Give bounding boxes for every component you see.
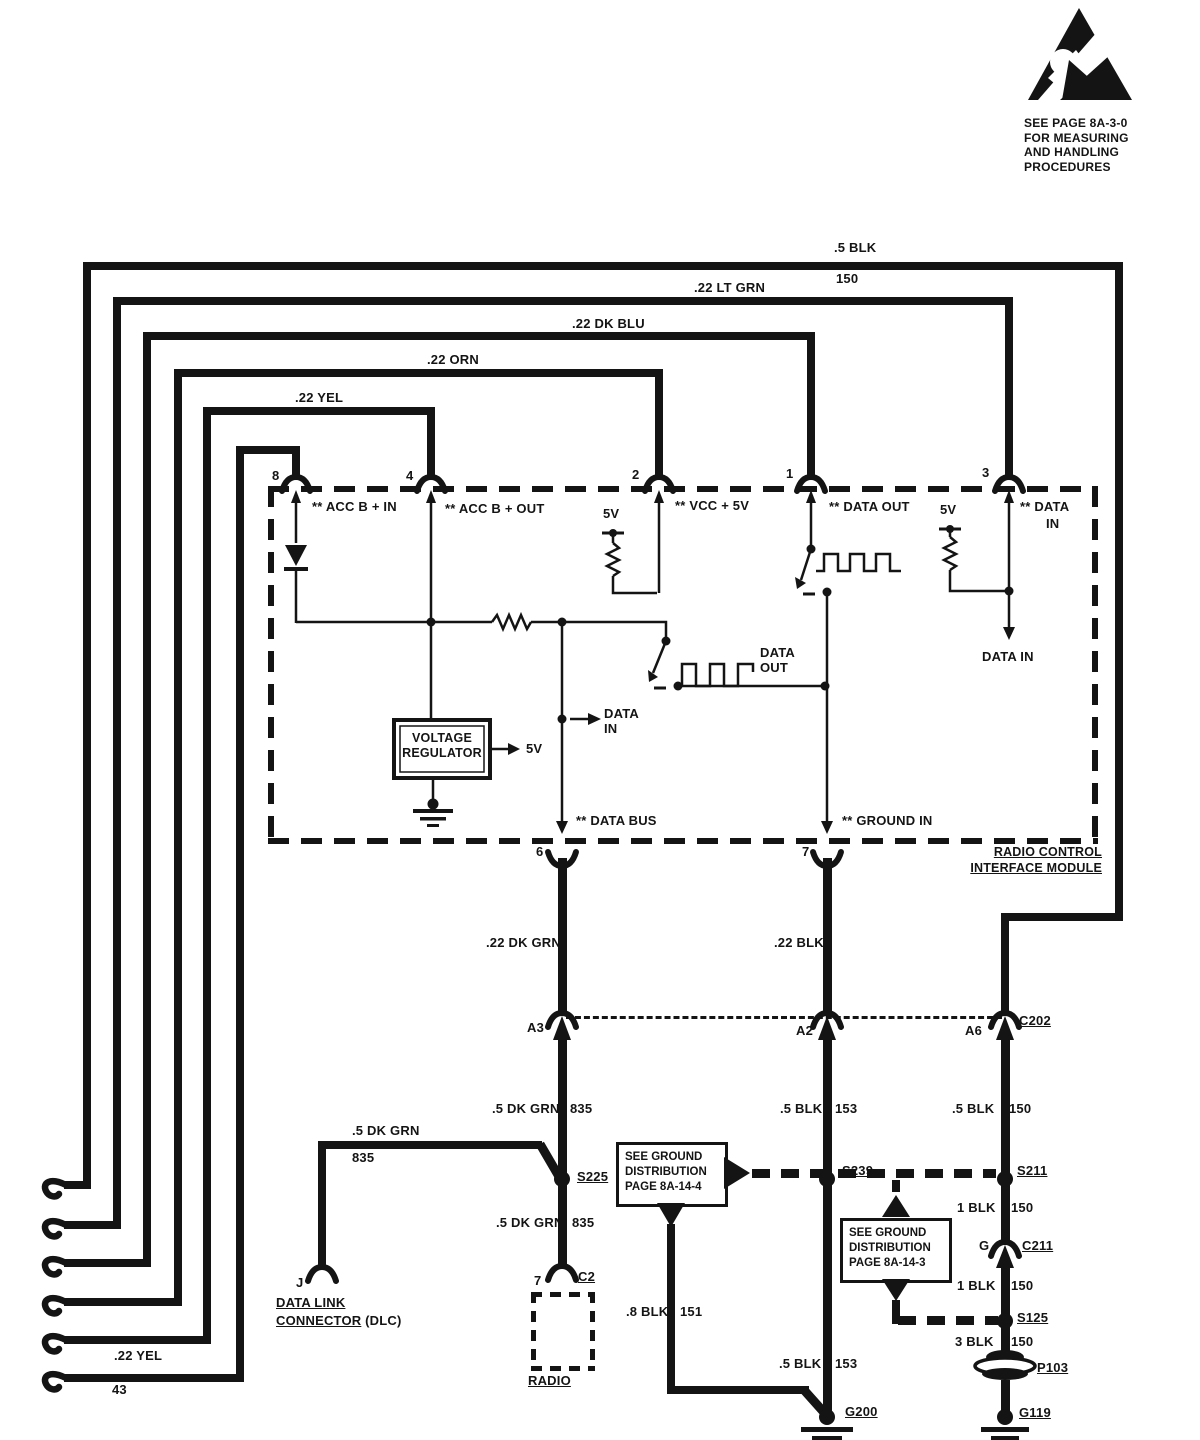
wire-label-orn: .22 ORN — [427, 353, 479, 367]
c202-label: C202 — [1019, 1014, 1051, 1028]
dlc-name-line2: CONNECTOR (DLC) — [276, 1314, 402, 1328]
seg-blk-label: .22 BLK — [774, 936, 824, 950]
wire-label-blk: .5 BLK — [834, 241, 876, 255]
data-out-mid-line2: OUT — [760, 661, 788, 675]
c2-wire-color: .5 DK GRN — [496, 1216, 564, 1230]
seg-dkgrn-label: .22 DK GRN — [486, 936, 561, 950]
text-layer: SEE PAGE 8A-3-0 FOR MEASURING AND HANDLI… — [0, 0, 1200, 1440]
g200-lower-circuit: 153 — [835, 1357, 857, 1371]
data-in-mid-line2: IN — [604, 722, 617, 736]
dlc-name-connector: CONNECTOR — [276, 1313, 361, 1328]
p103-label: P103 — [1037, 1361, 1068, 1375]
dlc-name-suffix: (DLC) — [361, 1313, 401, 1328]
a6-wire-circuit: 150 — [1009, 1102, 1031, 1116]
pin4-label: ** ACC B + OUT — [445, 502, 544, 516]
pin2-label: ** VCC + 5V — [675, 499, 749, 513]
g200-upper-circuit: 151 — [680, 1305, 702, 1319]
a3-label: A3 — [527, 1021, 544, 1035]
vr-line2: REGULATOR — [396, 746, 488, 761]
wire-circuit-43: 43 — [112, 1383, 127, 1397]
pin4-number: 4 — [406, 469, 413, 483]
r1-circuit: 150 — [1011, 1201, 1033, 1215]
data-in-mid-line1: DATA — [604, 707, 639, 721]
module-name: RADIO CONTROL INTERFACE MODULE — [930, 845, 1102, 876]
r3-color: 3 BLK — [955, 1335, 994, 1349]
r2-color: 1 BLK — [957, 1279, 996, 1293]
a3-wire-circuit: 835 — [570, 1102, 592, 1116]
pin8-number: 8 — [272, 469, 279, 483]
r3-circuit: 150 — [1011, 1335, 1033, 1349]
esd-note: SEE PAGE 8A-3-0 FOR MEASURING AND HANDLI… — [1024, 116, 1129, 174]
esd-note-line3: AND HANDLING — [1024, 145, 1129, 160]
wire-label-yel43: .22 YEL — [114, 1349, 162, 1363]
a6-wire-color: .5 BLK — [952, 1102, 994, 1116]
pullup-vcc-5v-label: 5V — [603, 507, 619, 521]
esd-note-line4: PROCEDURES — [1024, 160, 1129, 175]
wire-label-ltgrn: .22 LT GRN — [694, 281, 765, 295]
c211-label: C211 — [1022, 1239, 1053, 1253]
dlc-wire-circuit: 835 — [352, 1151, 374, 1165]
r2-circuit: 150 — [1011, 1279, 1033, 1293]
wiring-diagram-page: SEE GROUND DISTRIBUTION PAGE 8A-14-4 SEE… — [0, 0, 1200, 1440]
pin7-number: 7 — [802, 845, 809, 859]
data-out-mid-line1: DATA — [760, 646, 795, 660]
a2-wire-color: .5 BLK — [780, 1102, 822, 1116]
dlc-name-line1: DATA LINK — [276, 1296, 345, 1310]
a2-wire-circuit: 153 — [835, 1102, 857, 1116]
esd-note-line1: SEE PAGE 8A-3-0 — [1024, 116, 1129, 131]
pin1-number: 1 — [786, 467, 793, 481]
radio-label: RADIO — [528, 1374, 571, 1388]
g200-upper-color: .8 BLK — [626, 1305, 668, 1319]
wire-label-dkblu: .22 DK BLU — [572, 317, 645, 331]
pin3-number: 3 — [982, 466, 989, 480]
pin3-label-line1: ** DATA — [1020, 500, 1069, 514]
module-name-line2: INTERFACE MODULE — [930, 861, 1102, 877]
voltage-regulator-label: VOLTAGE REGULATOR — [396, 731, 488, 761]
pin6-number: 6 — [536, 845, 543, 859]
pin6-label: ** DATA BUS — [576, 814, 657, 828]
vr-line1: VOLTAGE — [396, 731, 488, 746]
g119-label: G119 — [1019, 1406, 1051, 1420]
pullup-data-5v-label: 5V — [940, 503, 956, 517]
module-name-line1: RADIO CONTROL — [930, 845, 1102, 861]
data-in-pin3-label: DATA IN — [982, 650, 1034, 664]
pin2-number: 2 — [632, 468, 639, 482]
pin7-label: ** GROUND IN — [842, 814, 933, 828]
wire-circuit-150: 150 — [836, 272, 858, 286]
g200-lower-color: .5 BLK — [779, 1357, 821, 1371]
r1-color: 1 BLK — [957, 1201, 996, 1215]
s125-label: S125 — [1017, 1311, 1048, 1325]
a3-wire-color: .5 DK GRN — [492, 1102, 560, 1116]
a6-label: A6 — [965, 1024, 982, 1038]
wire-label-yel: .22 YEL — [295, 391, 343, 405]
c211-pin-label: G — [979, 1239, 989, 1253]
c2-wire-circuit: 835 — [572, 1216, 594, 1230]
s225-label: S225 — [577, 1170, 608, 1184]
g200-label: G200 — [845, 1405, 878, 1419]
a2-label: A2 — [796, 1024, 813, 1038]
pin1-label: ** DATA OUT — [829, 500, 910, 514]
vr-out-5v-label: 5V — [526, 742, 542, 756]
dlc-wire-color: .5 DK GRN — [352, 1124, 420, 1138]
dlc-pin-number: J — [296, 1276, 303, 1290]
s211-label: S211 — [1017, 1164, 1047, 1178]
s239-label: S239 — [842, 1164, 873, 1178]
c2-pin-number: 7 — [534, 1274, 541, 1288]
pin3-label-line2: IN — [1046, 517, 1059, 531]
c2-label: C2 — [578, 1270, 595, 1284]
esd-note-line2: FOR MEASURING — [1024, 131, 1129, 146]
pin8-label: ** ACC B + IN — [312, 500, 397, 514]
